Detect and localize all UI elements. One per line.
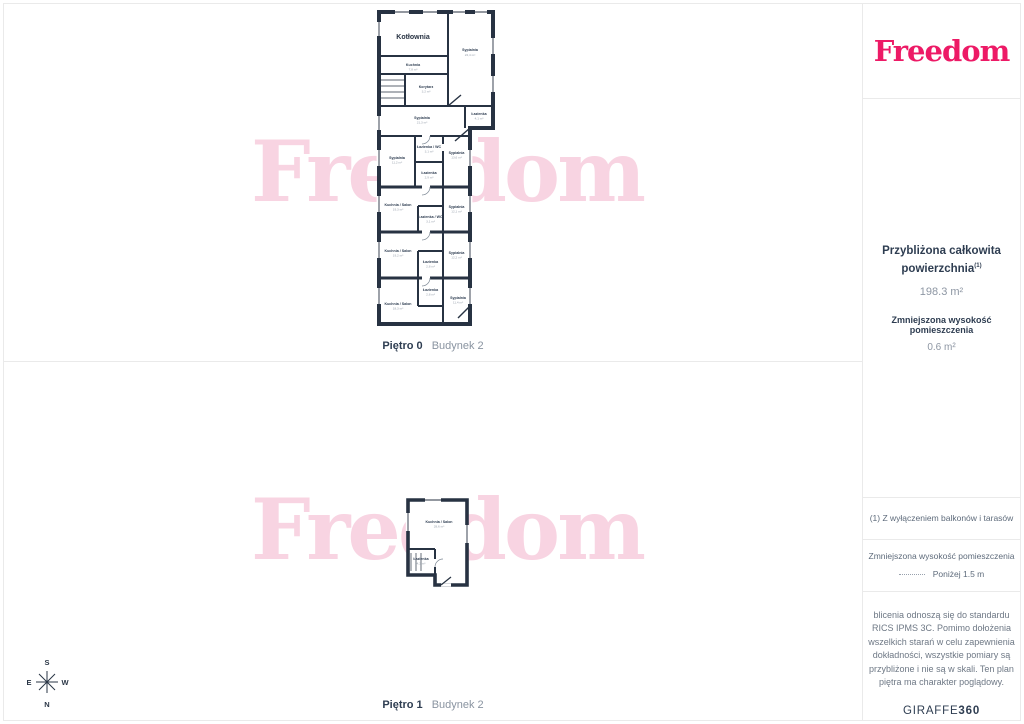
room-name: Korytarz	[419, 85, 434, 89]
room-name: Łazienka	[471, 112, 487, 116]
room-area: 3,1 m²	[425, 150, 434, 154]
room-area: 12,2 m²	[451, 256, 462, 260]
total-area-title-line1: Przybliżona całkowita	[882, 245, 1001, 257]
room-name: Sypialnia	[462, 48, 479, 52]
total-area-title: Przybliżona całkowita powierzchnia(1)	[882, 243, 1001, 279]
floor1-building: Budynek 2	[432, 699, 484, 711]
room-area: 4,1 m²	[475, 117, 484, 121]
floor-panel-0: Freedom	[4, 4, 862, 362]
room-area: 22,4 m²	[465, 53, 476, 57]
floor1-caption: Piętro 1Budynek 2	[4, 699, 862, 711]
legend-item-label: Poniżej 1.5 m	[933, 569, 985, 579]
page: Freedom	[3, 3, 1021, 721]
freedom-logo: Freedom	[874, 34, 1010, 68]
reduced-height-title: Zmniejszona wysokość pomieszczenia	[869, 315, 1014, 335]
disclaimer-line: przybliżone i nie są w skali. Ten plan	[863, 663, 1020, 677]
room-area: 4,2 m²	[417, 562, 426, 566]
floorplan-floor1: Kuchnia / Salon 28,6 m² Łazienka 4,2 m²	[405, 497, 471, 592]
disclaimer-line: wszelkich starań w celu zapewnienia	[863, 636, 1020, 650]
room-name: Łazienka / WC	[417, 145, 442, 149]
sidebar: Freedom Przybliżona całkowita powierzchn…	[863, 4, 1020, 720]
room-area: 12,1 m²	[451, 210, 462, 214]
room-name: Sypialnia	[449, 205, 466, 209]
floorplan-walls	[408, 500, 467, 585]
room-name: Kotłownia	[396, 34, 430, 41]
floorplan-floor0: Kotłownia Sypialnia 22,4 m² Kuchnia 7,8 …	[375, 10, 495, 326]
room-area: 2,8 m²	[426, 293, 435, 297]
room-name: Kuchnia	[406, 63, 421, 67]
room-name: Sypialnia	[449, 251, 466, 255]
disclaimer-line: blicenia odnoszą się do standardu	[863, 609, 1020, 623]
room-area: 11,4 m²	[453, 301, 463, 305]
room-area: 28,6 m²	[434, 525, 445, 529]
total-area-title-line2: powierzchnia	[901, 263, 974, 275]
room-name: Sypialnia	[389, 156, 406, 160]
room-area: 3,1 m²	[426, 220, 435, 224]
compass-e-label: E	[26, 678, 31, 687]
room-name: Kuchnia / Salon	[385, 203, 412, 207]
room-name: Łazienka	[423, 288, 439, 292]
floor0-caption: Piętro 0Budynek 2	[4, 340, 862, 352]
room-name: Kuchnia / Salon	[385, 249, 412, 253]
room-name: Kuchnia / Salon	[385, 302, 412, 306]
room-area: 3,2 m²	[422, 90, 431, 94]
logo-section: Freedom	[863, 4, 1020, 99]
room-name: Łazienka	[421, 171, 437, 175]
legend-row: Poniżej 1.5 m	[899, 569, 985, 579]
footnote-text: (1) Z wyłączeniem balkonów i tarasów	[870, 513, 1014, 523]
room-name: Sypialnia	[449, 151, 466, 155]
room-area: 2,9 m²	[425, 176, 434, 180]
room-name: Sypialnia	[450, 296, 467, 300]
dashed-line-swatch	[899, 574, 925, 575]
main-area: Freedom	[4, 4, 863, 720]
floor0-label: Piętro 0	[382, 340, 422, 352]
floorplan-walls	[379, 12, 493, 324]
area-summary-section: Przybliżona całkowita powierzchnia(1) 19…	[863, 99, 1020, 498]
compass-w-label: W	[61, 678, 69, 687]
room-area: 11,2 m²	[392, 161, 402, 165]
footnote-section: (1) Z wyłączeniem balkonów i tarasów	[863, 498, 1020, 540]
reduced-height-value: 0.6 m²	[927, 342, 955, 353]
room-name: Kuchnia / Salon	[426, 520, 453, 524]
floor1-label: Piętro 1	[382, 699, 422, 711]
room-area: 2,8 m²	[426, 265, 435, 269]
giraffe360-logo: GIRAFFE360	[863, 703, 1020, 720]
room-name: Łazienka / WC	[418, 215, 443, 219]
disclaimer-line: piętra ma charakter poglądowy.	[863, 676, 1020, 690]
legend-title: Zmniejszona wysokość pomieszczenia	[869, 551, 1015, 561]
room-area: 19,2 m²	[393, 254, 404, 258]
room-area: 21,3 m²	[417, 121, 428, 125]
legend-section: Zmniejszona wysokość pomieszczenia Poniż…	[863, 540, 1020, 592]
disclaimer-line: RICS IPMS 3C. Pomimo dołożenia	[863, 622, 1020, 636]
giraffe360-logo-main: GIRAFFE	[903, 705, 958, 717]
footnote-marker: (1)	[974, 263, 981, 269]
room-area: 18,3 m²	[393, 307, 404, 311]
room-area: 7,8 m²	[409, 68, 418, 72]
room-name: Łazienka	[423, 260, 439, 264]
giraffe360-logo-suffix: 360	[958, 705, 980, 717]
floor0-building: Budynek 2	[432, 340, 484, 352]
room-area: 19,3 m²	[393, 208, 404, 212]
disclaimer-line: dokładności, wszystkie pomiary są	[863, 649, 1020, 663]
room-name: Łazienka	[413, 557, 429, 561]
floor-panel-1: Freedom	[4, 362, 862, 720]
room-name: Sypialnia	[414, 116, 431, 120]
room-area: 13,6 m²	[451, 156, 462, 160]
total-area-value: 198.3 m²	[920, 286, 963, 298]
compass-star	[36, 671, 58, 693]
disclaimer-section: blicenia odnoszą się do standardu RICS I…	[863, 592, 1020, 720]
compass-s-label: S	[44, 658, 49, 667]
